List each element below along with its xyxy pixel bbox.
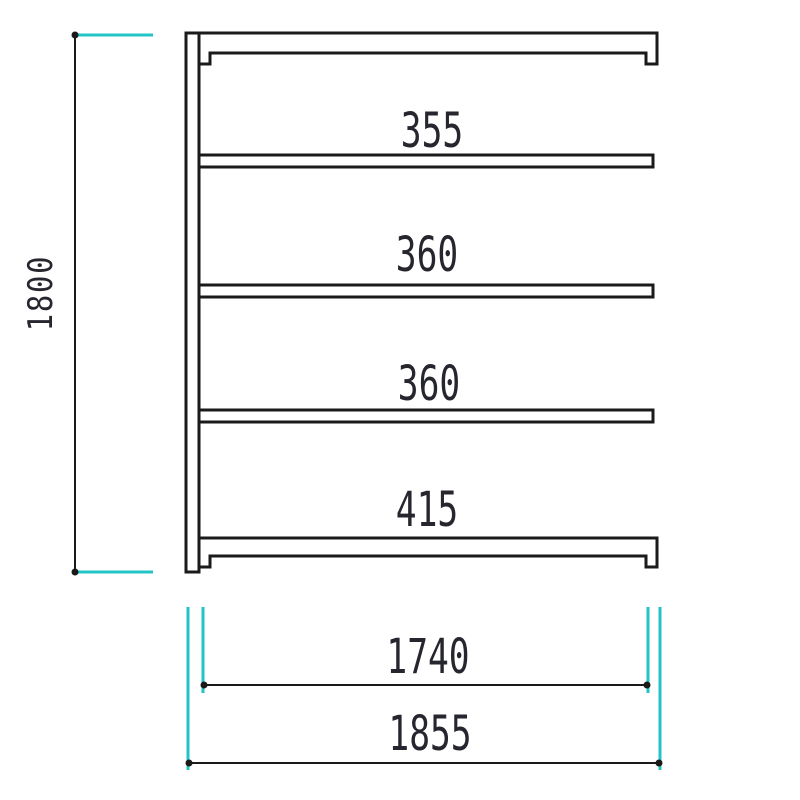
dim-label-inner-width: 1740: [386, 628, 469, 684]
dim-label-opening-third: 360: [398, 355, 460, 411]
dim-label-opening-top: 355: [401, 102, 463, 158]
dot-inner-width-left: [201, 682, 208, 689]
dim-label-opening-second: 360: [396, 226, 458, 282]
dot-inner-width-right: [644, 682, 651, 689]
dimension-lines: [75, 35, 660, 763]
dot-height-top: [72, 32, 79, 39]
dot-height-bottom: [72, 569, 79, 576]
dot-overall-width-right: [656, 760, 663, 767]
dimension-dots: [72, 32, 663, 767]
dimension-drawing: 1800 355 360 360 415 1740 1855: [0, 0, 800, 800]
shelf-3: [199, 410, 653, 422]
left-upright-post: [186, 33, 199, 572]
shelf-2: [199, 285, 653, 297]
bottom-beam: [199, 538, 657, 567]
dim-label-overall-height: 1800: [22, 255, 61, 331]
dot-overall-width-left: [186, 760, 193, 767]
dim-label-opening-bottom: 415: [396, 481, 458, 537]
dim-label-overall-width: 1855: [388, 705, 471, 761]
dimension-labels: 1800 355 360 360 415 1740 1855: [22, 102, 472, 761]
shelf-elevation-svg: 1800 355 360 360 415 1740 1855: [0, 0, 800, 800]
top-beam: [199, 33, 657, 64]
extension-lines: [72, 35, 660, 770]
